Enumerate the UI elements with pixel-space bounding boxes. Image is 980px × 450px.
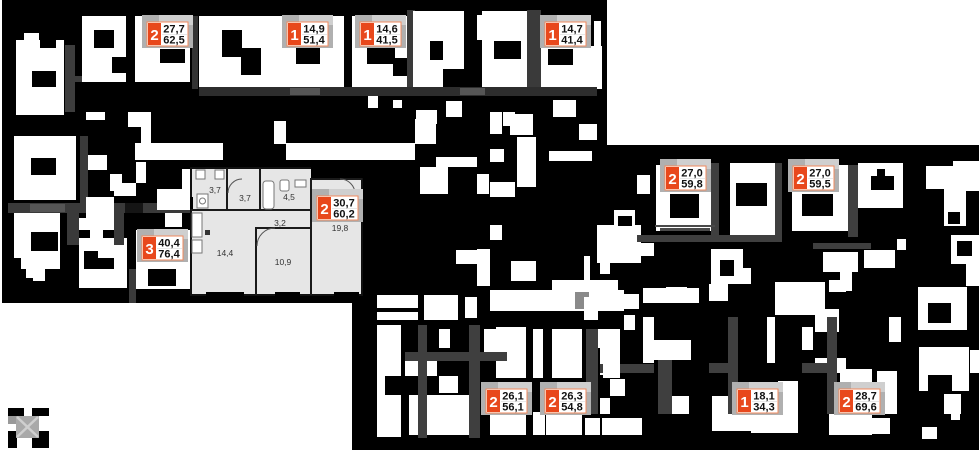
svg-text:2: 2 xyxy=(796,171,804,188)
svg-text:2: 2 xyxy=(489,394,497,411)
svg-text:51,4: 51,4 xyxy=(303,35,325,47)
svg-text:62,5: 62,5 xyxy=(163,35,184,47)
svg-text:56,1: 56,1 xyxy=(502,402,523,414)
svg-text:59,8: 59,8 xyxy=(681,179,702,191)
svg-text:1: 1 xyxy=(363,27,371,44)
svg-text:10,9: 10,9 xyxy=(275,257,292,267)
svg-text:14,4: 14,4 xyxy=(217,248,234,258)
svg-text:59,5: 59,5 xyxy=(809,179,830,191)
svg-text:54,8: 54,8 xyxy=(561,402,582,414)
svg-text:3,7: 3,7 xyxy=(209,185,221,195)
svg-text:60,2: 60,2 xyxy=(333,209,354,221)
svg-text:2: 2 xyxy=(150,27,158,44)
svg-text:1: 1 xyxy=(548,27,556,44)
svg-text:2: 2 xyxy=(548,394,556,411)
svg-text:3,2: 3,2 xyxy=(274,218,286,228)
svg-text:41,4: 41,4 xyxy=(561,35,583,47)
svg-text:41,5: 41,5 xyxy=(376,35,397,47)
svg-text:2: 2 xyxy=(320,201,328,218)
svg-text:2: 2 xyxy=(668,171,676,188)
svg-text:2: 2 xyxy=(842,394,850,411)
svg-text:4,5: 4,5 xyxy=(283,192,295,202)
svg-text:76,4: 76,4 xyxy=(158,249,180,261)
svg-text:1: 1 xyxy=(290,27,298,44)
svg-text:19,8: 19,8 xyxy=(332,223,349,233)
svg-text:3,7: 3,7 xyxy=(239,193,251,203)
svg-text:3: 3 xyxy=(145,241,153,258)
svg-text:34,3: 34,3 xyxy=(753,402,774,414)
svg-text:1: 1 xyxy=(740,394,748,411)
svg-text:69,6: 69,6 xyxy=(855,402,876,414)
